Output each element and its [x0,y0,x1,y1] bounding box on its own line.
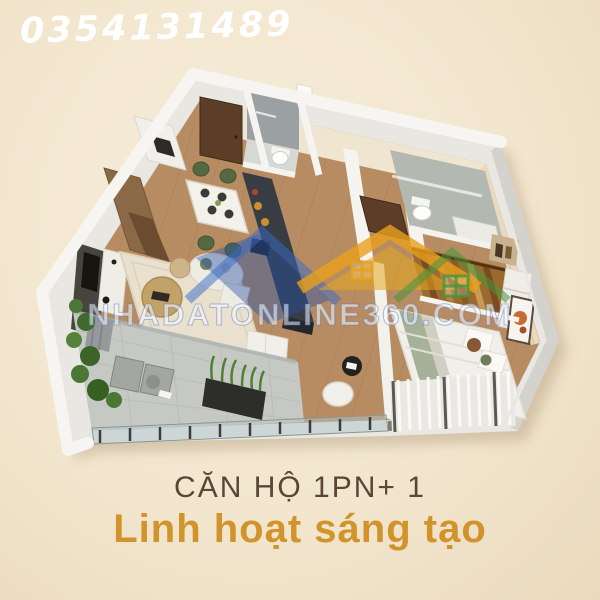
dining-chair [198,236,214,250]
green-window-icon [444,276,468,296]
side-stool [170,258,190,278]
balcony-table [146,375,160,389]
caption-block: CĂN HỘ 1PN+ 1 Linh hoạt sáng tạo [0,471,600,552]
poster: 0354131489 [0,0,600,600]
tv [81,252,100,292]
bean-bag [323,382,353,406]
entry-door [200,97,242,164]
door-handle [234,135,237,138]
toilet [272,152,288,165]
watermark-text: NHADATONLINE360.COM [87,297,512,332]
green-pillow [481,355,492,366]
table-plant [215,200,221,206]
brown-pillow [467,338,481,352]
balcony-chair [110,356,144,392]
dining-chair [193,162,209,176]
gold-window-icon [352,262,372,279]
toilet [413,206,431,220]
apartment-type-title: CĂN HỘ 1PN+ 1 [0,471,600,505]
dining-chair [220,169,236,183]
apartment-slogan: Linh hoạt sáng tạo [0,507,600,552]
bedroom-curtains [390,371,516,433]
